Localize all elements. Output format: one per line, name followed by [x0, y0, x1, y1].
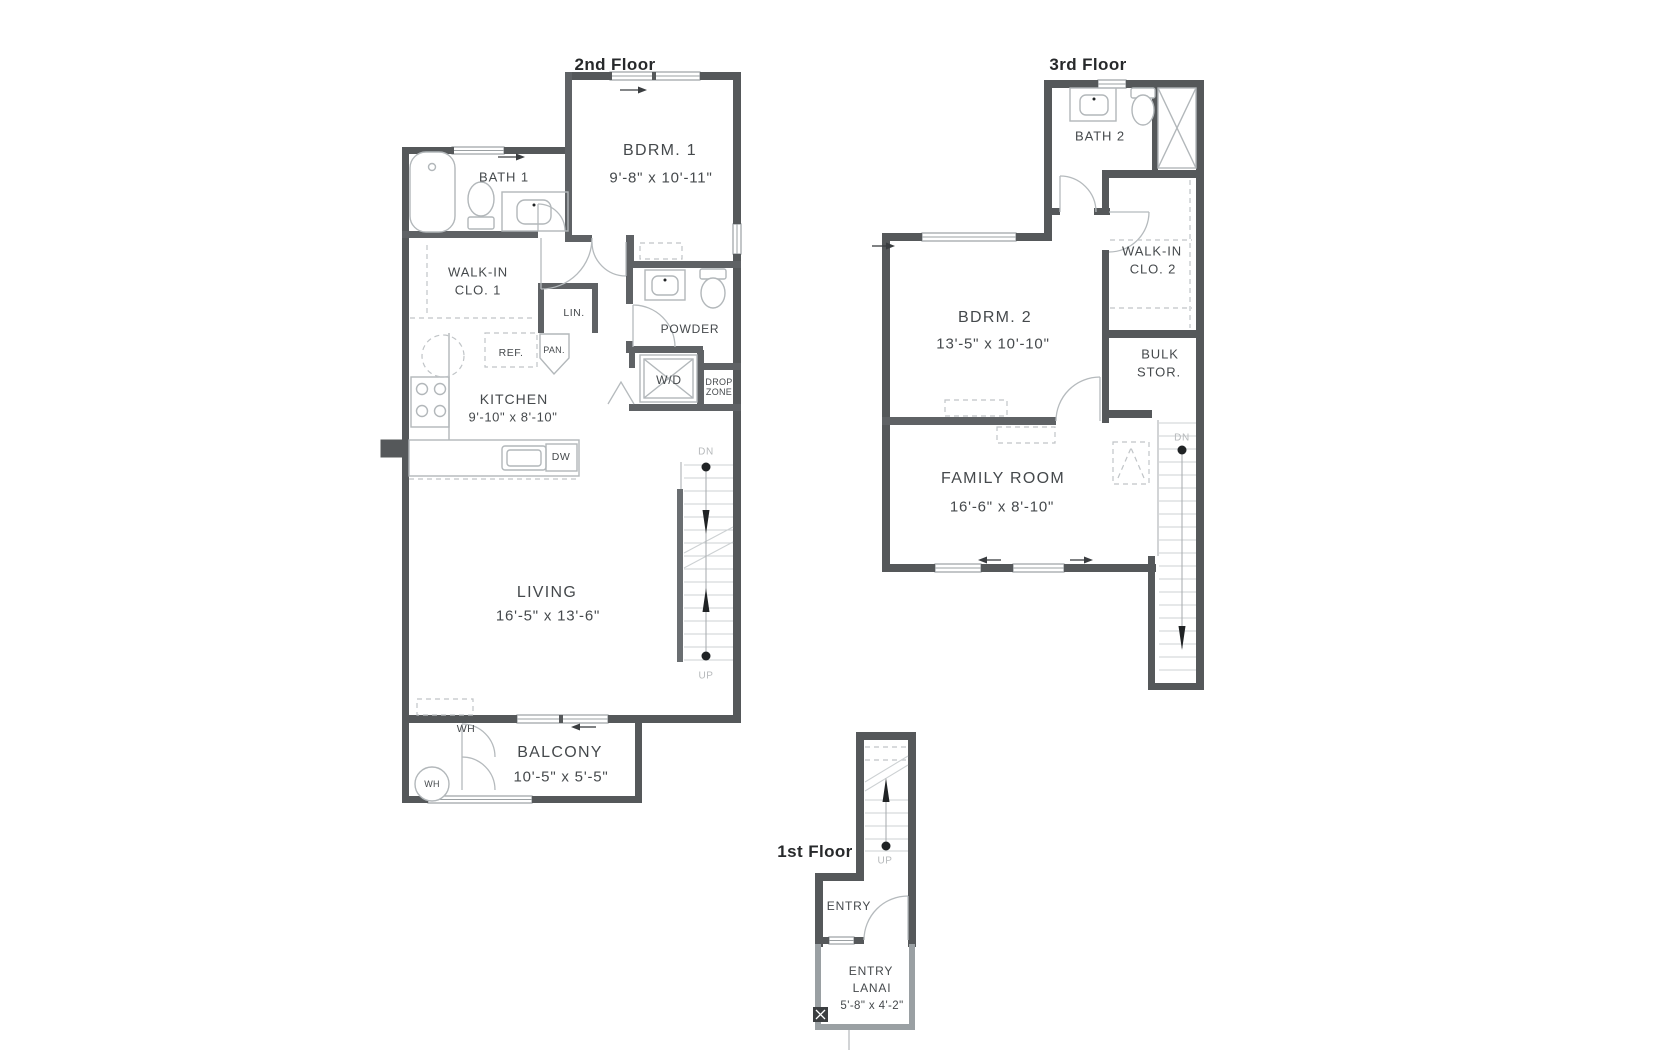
bulk-stor-label-line1: BULK — [1141, 347, 1179, 362]
walkin1-label-line1: WALK-IN — [448, 265, 508, 280]
ref-label: REF. — [499, 347, 524, 359]
entry-lanai-label-line1: ENTRY — [849, 964, 893, 978]
bdrm2-label: BDRM. 2 — [958, 309, 1032, 327]
walkin2-label-line2: CLO. 2 — [1130, 262, 1177, 277]
pan-label: PAN. — [543, 345, 565, 355]
floor1-title: 1st Floor — [777, 842, 852, 862]
living-dims: 16'-5" x 13'-6" — [496, 608, 600, 625]
kitchen-label: KITCHEN — [480, 391, 548, 407]
bulk-stor-label-line2: STOR. — [1137, 365, 1181, 380]
walkin2-label-line1: WALK-IN — [1122, 244, 1182, 259]
floor1-stairs-up-label: UP — [877, 856, 892, 867]
linen-label: LIN. — [563, 307, 584, 319]
dropzone-label-line2: ZONE — [706, 387, 732, 397]
bath1-label: BATH 1 — [479, 170, 529, 185]
bdrm1-label: BDRM. 1 — [623, 142, 697, 160]
wh-closet-label: WH — [457, 723, 476, 735]
floor2-stairs-up-label: UP — [698, 671, 713, 682]
entry-lanai-label-line2: LANAI — [853, 981, 892, 995]
family-room-label: FAMILY ROOM — [941, 470, 1065, 488]
family-room-dims: 16'-6" x 8'-10" — [950, 499, 1054, 516]
bdrm1-dims: 9'-8" x 10'-11" — [609, 170, 712, 187]
balcony-dims: 10'-5" x 5'-5" — [513, 769, 608, 786]
wh-tank-label: WH — [424, 779, 440, 789]
wd-label: W/D — [656, 373, 682, 387]
bath2-label: BATH 2 — [1075, 129, 1125, 144]
walkin1-label-line2: CLO. 1 — [455, 283, 502, 298]
bdrm2-dims: 13'-5" x 10'-10" — [936, 336, 1049, 353]
balcony-label: BALCONY — [517, 744, 603, 762]
dropzone-label-line1: DROP — [705, 377, 732, 387]
floor3-stairs-dn-label: DN — [1174, 433, 1190, 444]
floor2-stairs-dn-label: DN — [698, 447, 714, 458]
floor2-title: 2nd Floor — [574, 55, 655, 75]
living-label: LIVING — [517, 584, 577, 602]
powder-label: POWDER — [661, 322, 720, 336]
floorplan-labels: 2nd Floor BDRM. 1 9'-8" x 10'-11" BATH 1… — [0, 0, 1680, 1050]
kitchen-dims: 9'-10" x 8'-10" — [469, 410, 558, 425]
dw-label: DW — [552, 451, 571, 463]
entry-lanai-dims: 5'-8" x 4'-2" — [840, 1000, 903, 1012]
entry-label: ENTRY — [827, 899, 871, 913]
floor3-title: 3rd Floor — [1049, 55, 1126, 75]
floorplan-image: 2nd Floor BDRM. 1 9'-8" x 10'-11" BATH 1… — [0, 0, 1680, 1050]
